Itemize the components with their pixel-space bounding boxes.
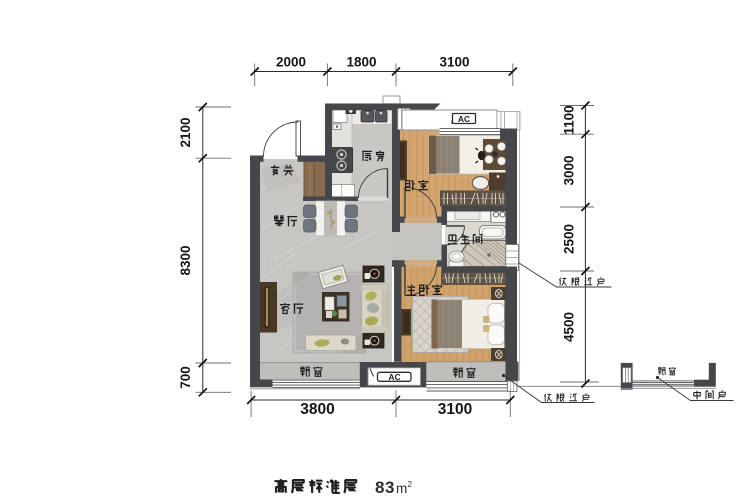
svg-text:1100: 1100 [562,105,577,134]
svg-text:m: m [396,481,407,496]
svg-text:8300: 8300 [178,245,193,275]
svg-text:AC: AC [458,114,470,124]
svg-text:2100: 2100 [178,117,193,147]
svg-text:4500: 4500 [562,312,577,342]
svg-text:3000: 3000 [562,155,577,185]
svg-text:700: 700 [178,366,193,389]
svg-text:3800: 3800 [300,401,334,418]
svg-text:2000: 2000 [276,55,306,70]
svg-text:1800: 1800 [346,55,376,70]
svg-text:83: 83 [375,478,395,497]
svg-text:AC: AC [388,372,400,382]
svg-text:3100: 3100 [438,401,472,418]
svg-text:3100: 3100 [439,55,469,70]
svg-text:2: 2 [408,480,413,489]
svg-text:2500: 2500 [562,224,577,254]
